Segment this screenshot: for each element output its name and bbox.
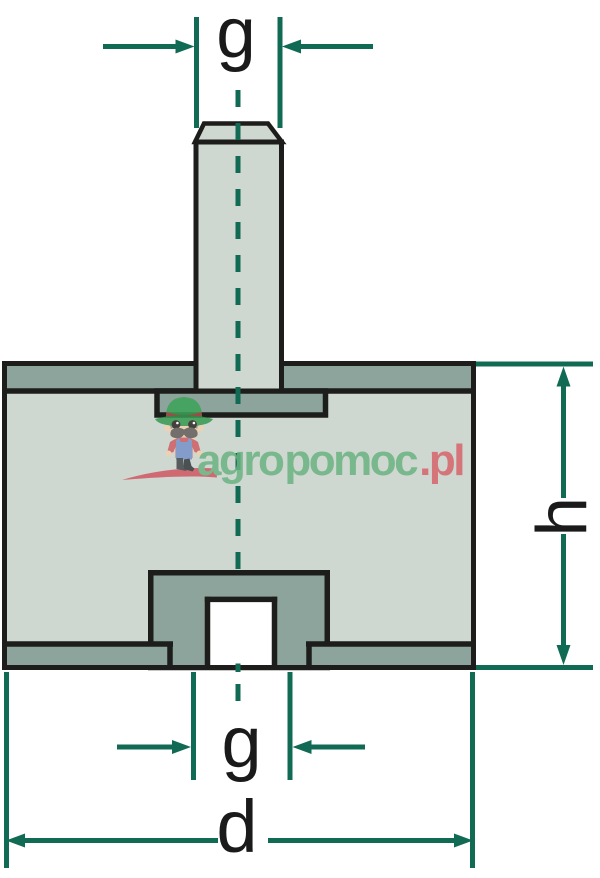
svg-text:g: g	[221, 703, 261, 783]
svg-text:d: d	[216, 785, 257, 868]
svg-text:agropomoc.pl: agropomoc.pl	[197, 436, 463, 485]
svg-text:g: g	[216, 0, 256, 73]
svg-text:h: h	[524, 497, 600, 537]
